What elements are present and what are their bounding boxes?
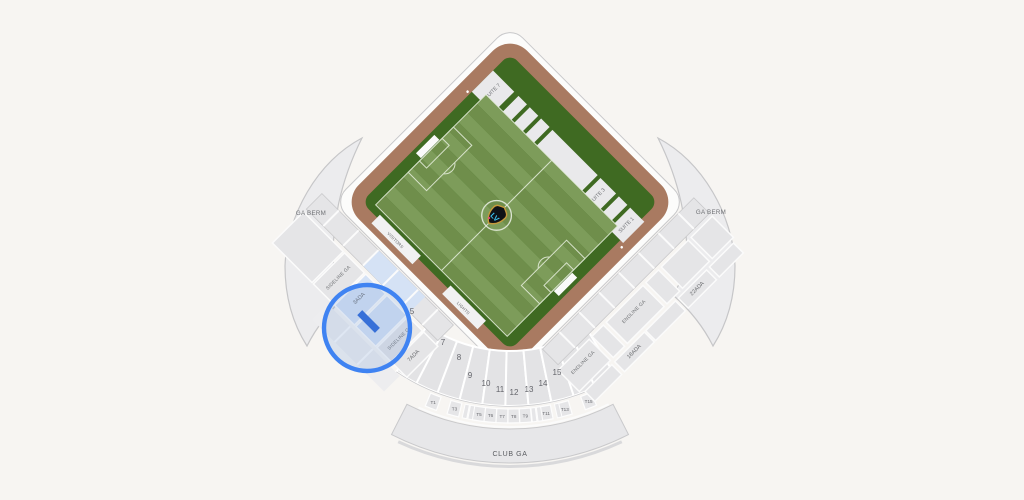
table-label: T3 xyxy=(452,407,458,412)
seat-map-stage: SUITE 7 ▪▪▪▪▪▪▪▪▪▪▪▪▪ ★ ▪▪ SUITE 3 SUITE… xyxy=(0,0,1024,500)
section-number-label: 8 xyxy=(457,353,462,362)
section-number-label: 12 xyxy=(510,388,519,397)
section-number-label: 5 xyxy=(410,307,415,316)
table-label: T7 xyxy=(499,414,505,419)
stadium-map: SUITE 7 ▪▪▪▪▪▪▪▪▪▪▪▪▪ ★ ▪▪ SUITE 3 SUITE… xyxy=(0,0,1024,500)
ga-berm-right-label: GA BERM xyxy=(696,209,726,216)
table-label: T8 xyxy=(511,414,517,419)
section-number-label: 9 xyxy=(468,371,473,380)
table-label: T11 xyxy=(542,411,550,416)
section-number-label: 13 xyxy=(525,385,534,394)
section-number-label: 11 xyxy=(496,385,505,394)
table-label: T13 xyxy=(561,407,569,412)
section-number-label: 7 xyxy=(441,338,446,347)
table-label: T9 xyxy=(523,413,529,418)
table-label: T5 xyxy=(476,412,482,417)
club-ga-label: CLUB GA xyxy=(493,451,528,458)
table-label: T1 xyxy=(430,400,436,405)
table-label: T15 xyxy=(585,399,593,404)
section-number-label: 14 xyxy=(539,379,548,388)
ga-berm-left-label: GA BERM xyxy=(296,210,326,217)
section-number-label: 10 xyxy=(482,379,491,388)
selection-highlight-circle xyxy=(324,285,410,371)
table-label: T6 xyxy=(488,413,494,418)
section-number-label: 15 xyxy=(553,368,562,377)
